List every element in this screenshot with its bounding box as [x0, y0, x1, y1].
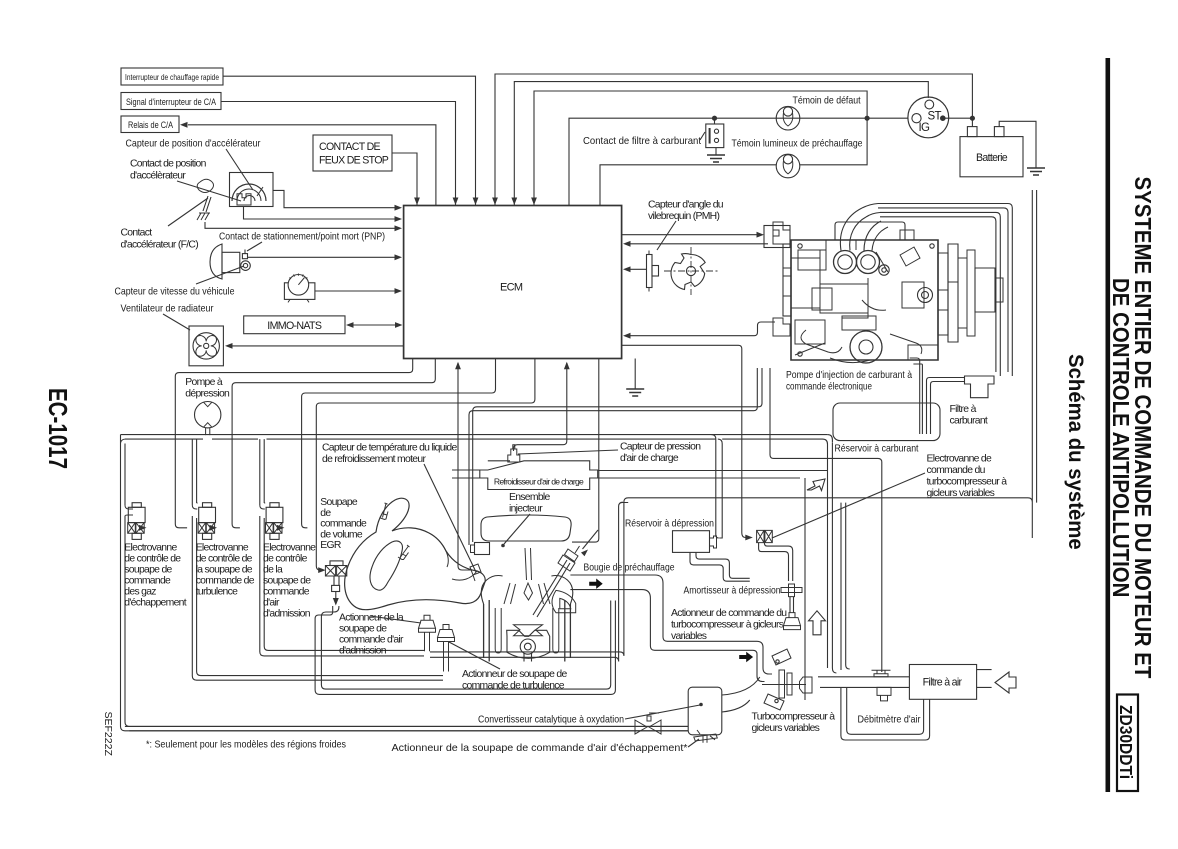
svg-text:Contact de filtre à carburant: Contact de filtre à carburant [583, 136, 701, 147]
svg-text:d'échappement: d'échappement [124, 598, 186, 609]
svg-text:de contrôle de: de contrôle de [196, 554, 253, 565]
svg-text:commande d'air: commande d'air [339, 635, 404, 646]
svg-text:d'accélèrateur: d'accélèrateur [130, 171, 186, 182]
svg-text:Refroidisseur d'air de charge: Refroidisseur d'air de charge [494, 477, 584, 487]
svg-text:Contact de stationnement/point: Contact de stationnement/point mort (PNP… [219, 232, 385, 243]
svg-text:dépression: dépression [185, 389, 230, 400]
svg-text:vilebrequin (PMH): vilebrequin (PMH) [648, 211, 719, 222]
svg-text:de: de [320, 508, 331, 519]
svg-text:turbulence: turbulence [196, 587, 238, 598]
svg-text:soupape de: soupape de [339, 624, 387, 635]
svg-text:CONTACT DE: CONTACT DE [319, 141, 381, 153]
svg-text:d'admission: d'admission [263, 609, 311, 620]
svg-text:Filtre à air: Filtre à air [923, 677, 963, 689]
svg-text:commande: commande [263, 587, 310, 598]
svg-text:*: Seulement pour les modèles: *: Seulement pour les modèles des région… [146, 740, 346, 751]
svg-text:commande du: commande du [927, 465, 986, 476]
svg-text:Filtre à: Filtre à [950, 404, 977, 415]
svg-text:Pompe d'injection de carburant: Pompe d'injection de carburant à [786, 370, 912, 381]
svg-text:Turbocompresseur à: Turbocompresseur à [752, 712, 836, 723]
svg-text:d'air de charge: d'air de charge [620, 453, 679, 464]
svg-text:turbocompresseur à gicleurs: turbocompresseur à gicleurs [671, 620, 784, 631]
svg-text:Capteur de température du liqu: Capteur de température du liquide [322, 443, 458, 454]
svg-text:d'admission: d'admission [339, 646, 387, 657]
svg-text:Amortisseur à dépression: Amortisseur à dépression [684, 586, 781, 597]
svg-text:Bougie de préchauffage: Bougie de préchauffage [584, 563, 675, 574]
svg-text:Electrovanne: Electrovanne [196, 543, 249, 554]
svg-text:Electrovanne de: Electrovanne de [927, 454, 993, 465]
svg-text:de contrôle de: de contrôle de [124, 554, 181, 565]
svg-text:la soupape de: la soupape de [196, 565, 253, 576]
svg-text:commande électronique: commande électronique [786, 382, 872, 393]
svg-text:Témoin de défaut: Témoin de défaut [793, 96, 861, 107]
svg-text:gicleurs variables: gicleurs variables [752, 723, 820, 734]
svg-text:d'air: d'air [263, 598, 280, 609]
svg-text:carburant: carburant [950, 416, 988, 427]
svg-text:d'accélérateur (F/C): d'accélérateur (F/C) [121, 240, 199, 251]
svg-text:IMMO-NATS: IMMO-NATS [267, 320, 321, 332]
svg-text:turbocompresseur à: turbocompresseur à [927, 477, 1008, 488]
svg-text:Interrupteur de chauffage rapi: Interrupteur de chauffage rapide [125, 72, 219, 82]
svg-text:Capteur de vitesse du véhicule: Capteur de vitesse du véhicule [115, 287, 235, 298]
svg-text:Contact de position: Contact de position [130, 159, 207, 170]
svg-text:de refroidissement moteur: de refroidissement moteur [322, 454, 426, 465]
svg-text:ECM: ECM [500, 282, 523, 294]
svg-text:Ensemble: Ensemble [509, 492, 551, 503]
svg-text:ZD30DDTi: ZD30DDTi [1116, 705, 1136, 779]
svg-text:IG: IG [919, 122, 930, 134]
svg-text:de la: de la [263, 565, 283, 576]
svg-text:Réservoir à dépression: Réservoir à dépression [625, 519, 714, 530]
svg-text:Débitmètre d'air: Débitmètre d'air [858, 715, 921, 726]
svg-text:Témoin lumineux de préchauffag: Témoin lumineux de préchauffage [732, 139, 863, 150]
svg-text:Ventilateur de radiateur: Ventilateur de radiateur [121, 304, 214, 315]
svg-text:FEUX DE STOP: FEUX DE STOP [319, 155, 389, 167]
svg-text:Electrovanne: Electrovanne [263, 543, 316, 554]
svg-text:soupape de: soupape de [263, 576, 311, 587]
svg-text:Capteur de position d'accéléra: Capteur de position d'accélérateur [126, 139, 261, 150]
svg-text:Actionneur de la soupape de co: Actionneur de la soupape de commande d'a… [392, 743, 688, 754]
svg-text:Réservoir à carburant: Réservoir à carburant [835, 444, 919, 455]
svg-text:Soupape: Soupape [320, 497, 358, 508]
svg-text:commande de: commande de [196, 576, 255, 587]
svg-text:Convertisseur catalytique à ox: Convertisseur catalytique à oxydation [478, 715, 624, 726]
svg-text:Electrovanne: Electrovanne [124, 543, 177, 554]
svg-text:Actionneur de commande du: Actionneur de commande du [671, 608, 787, 619]
svg-text:Schéma du système: Schéma du système [1064, 354, 1087, 550]
svg-text:SEF222Z: SEF222Z [102, 712, 114, 757]
svg-text:Signal d'interrupteur de C/A: Signal d'interrupteur de C/A [126, 97, 216, 107]
svg-text:Actionneur de soupape de: Actionneur de soupape de [462, 669, 567, 680]
svg-text:de volume: de volume [320, 529, 363, 540]
svg-text:Pompe à: Pompe à [185, 377, 223, 388]
svg-text:commande: commande [124, 576, 171, 587]
svg-text:Actionneur de la: Actionneur de la [339, 613, 404, 624]
svg-text:Capteur de pression: Capteur de pression [620, 442, 701, 453]
svg-text:variables: variables [671, 631, 707, 642]
svg-text:soupape de: soupape de [124, 565, 172, 576]
svg-text:EC-1017: EC-1017 [43, 388, 72, 469]
svg-text:Batterie: Batterie [976, 152, 1008, 164]
svg-text:commande: commande [320, 519, 367, 530]
svg-text:Capteur d'angle du: Capteur d'angle du [648, 200, 724, 211]
svg-text:EGR: EGR [320, 540, 342, 551]
svg-text:de contrôle: de contrôle [263, 554, 308, 565]
svg-text:Relais de C/A: Relais de C/A [128, 120, 173, 130]
svg-text:DE CONTROLE ANTIPOLLUTION: DE CONTROLE ANTIPOLLUTION [1108, 278, 1134, 597]
svg-text:injecteur: injecteur [509, 504, 543, 515]
svg-text:ST: ST [928, 111, 942, 123]
svg-text:commande de turbulence: commande de turbulence [462, 681, 565, 692]
svg-text:Contact: Contact [121, 228, 153, 239]
svg-text:des gaz: des gaz [124, 587, 156, 598]
